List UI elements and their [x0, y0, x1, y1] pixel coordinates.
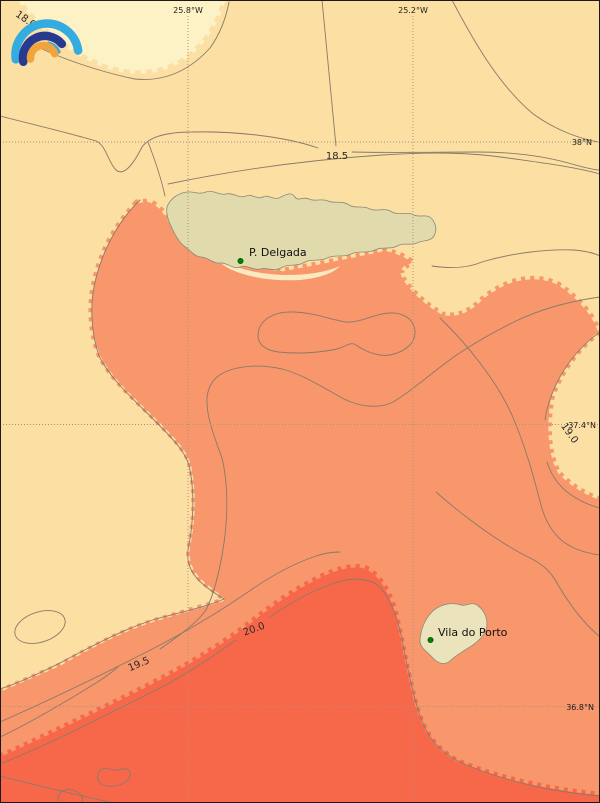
lon-label-25.2w: 25.2°W	[398, 6, 428, 15]
map-canvas: 25.8°W 25.2°W 38°N 37.4°N 36.8°N 18.0 18…	[0, 0, 600, 803]
marker-vila-do-porto	[428, 637, 433, 642]
marker-p-delgada	[238, 258, 243, 263]
contour-map-figure: 25.8°W 25.2°W 38°N 37.4°N 36.8°N 18.0 18…	[0, 0, 600, 803]
contour-label-18.5: 18.5	[326, 151, 348, 162]
lat-label-38n: 38°N	[572, 138, 592, 147]
place-label-p-delgada: P. Delgada	[249, 246, 307, 259]
lon-label-25.8w: 25.8°W	[173, 6, 203, 15]
place-label-vila-do-porto: Vila do Porto	[438, 626, 508, 639]
lat-label-36.8n: 36.8°N	[566, 703, 594, 712]
